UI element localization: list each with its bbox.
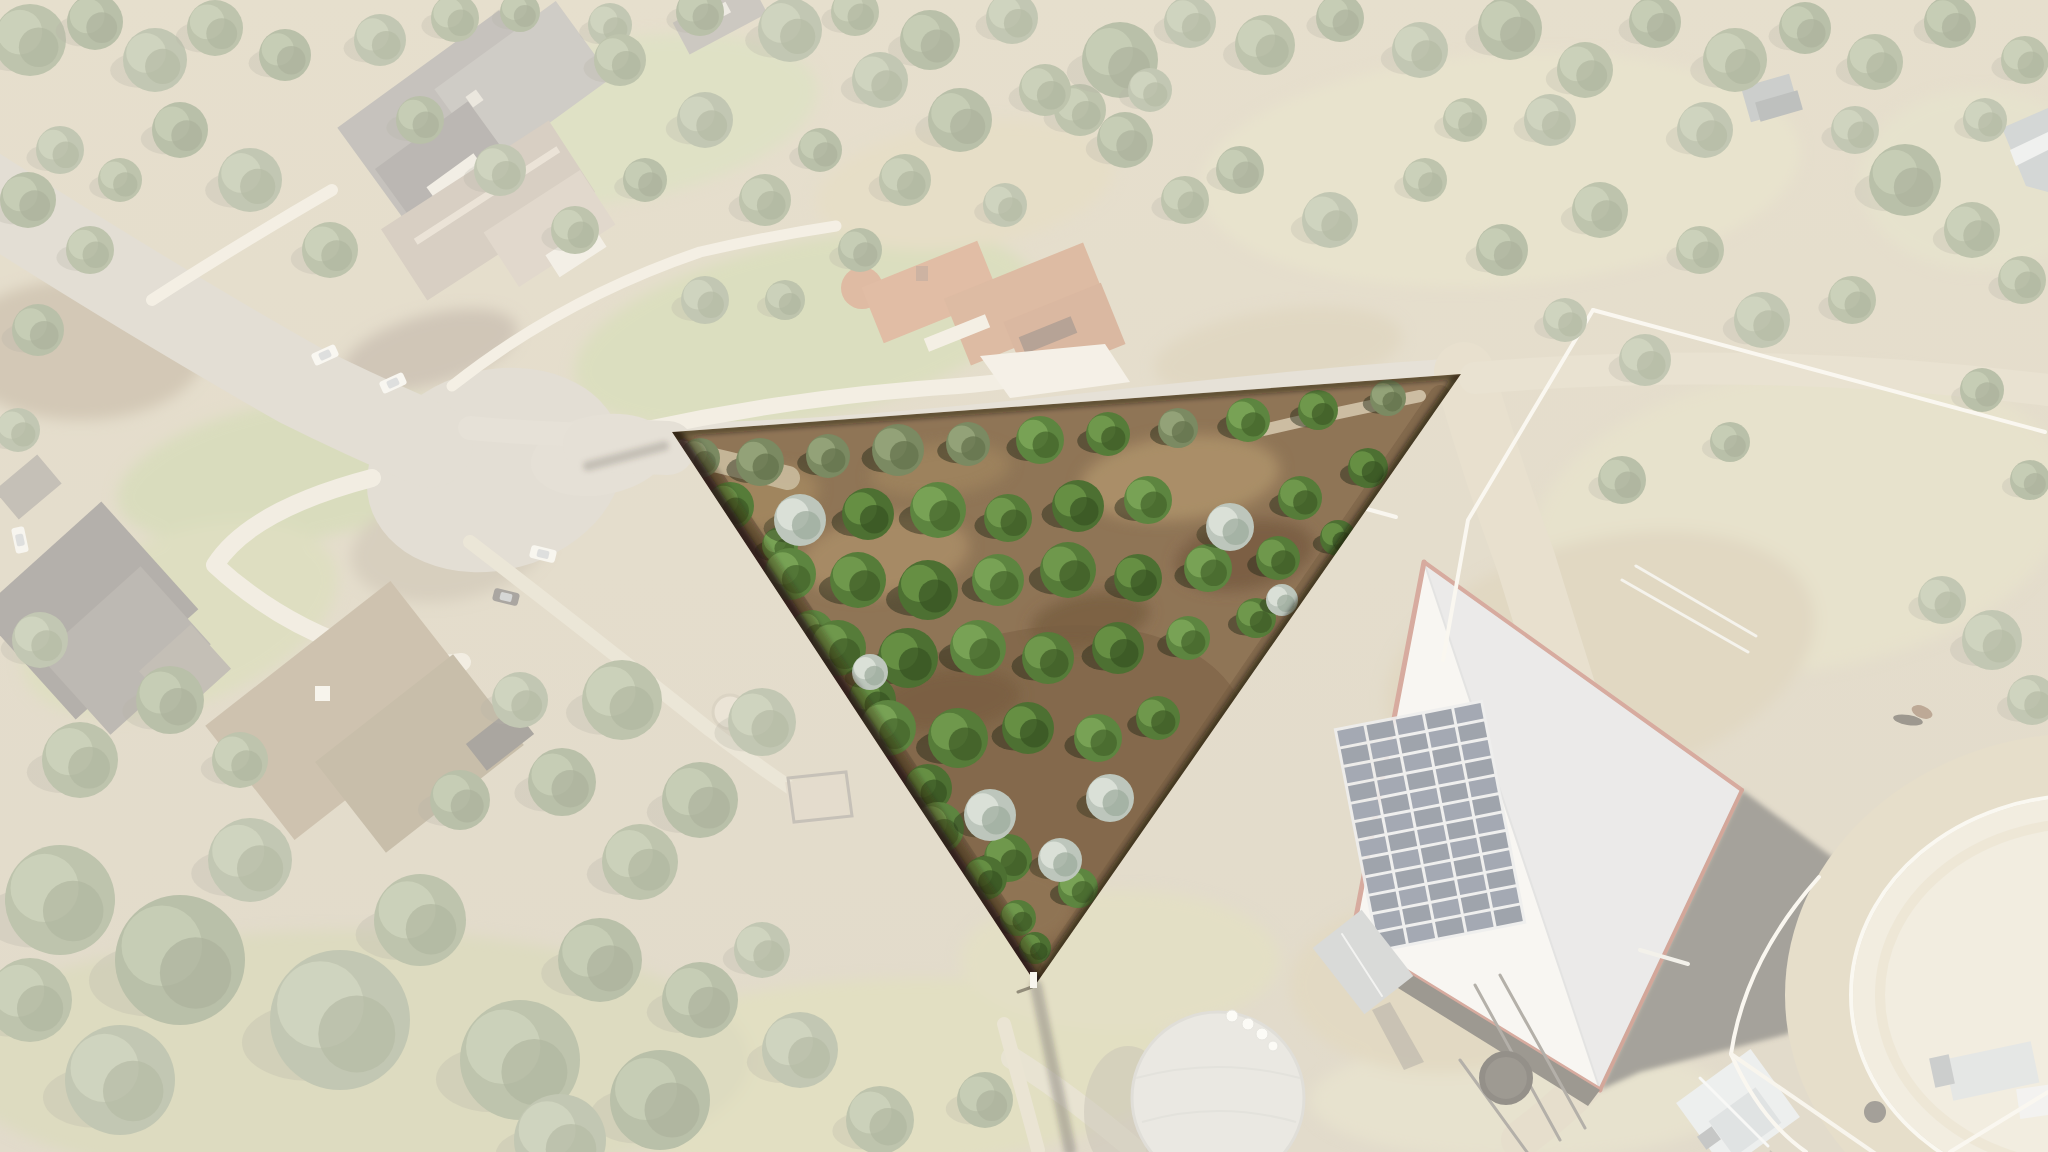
aerial-photo-canvas — [0, 0, 2048, 1152]
aerial-property-photo — [0, 0, 2048, 1152]
warm-film — [0, 0, 2048, 1152]
